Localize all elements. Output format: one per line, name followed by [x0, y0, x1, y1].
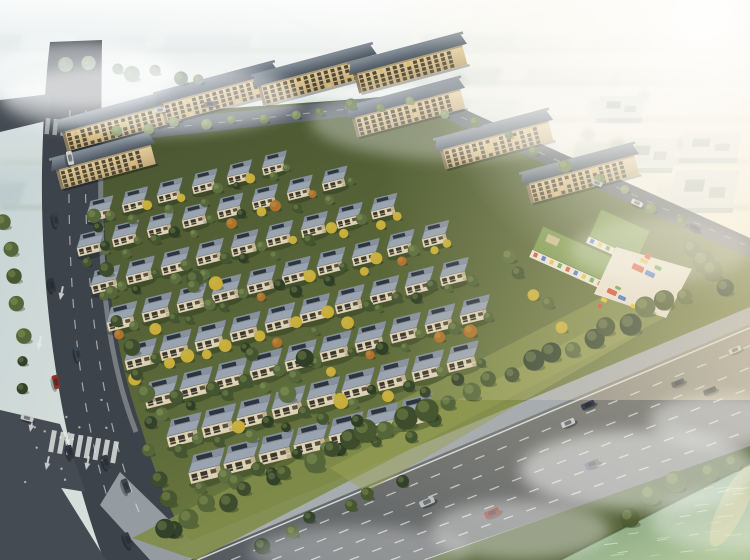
sun-glow [0, 0, 750, 560]
scene-svg [0, 0, 750, 560]
render-viewport: Aerial architectural rendering of a resi… [0, 0, 750, 560]
